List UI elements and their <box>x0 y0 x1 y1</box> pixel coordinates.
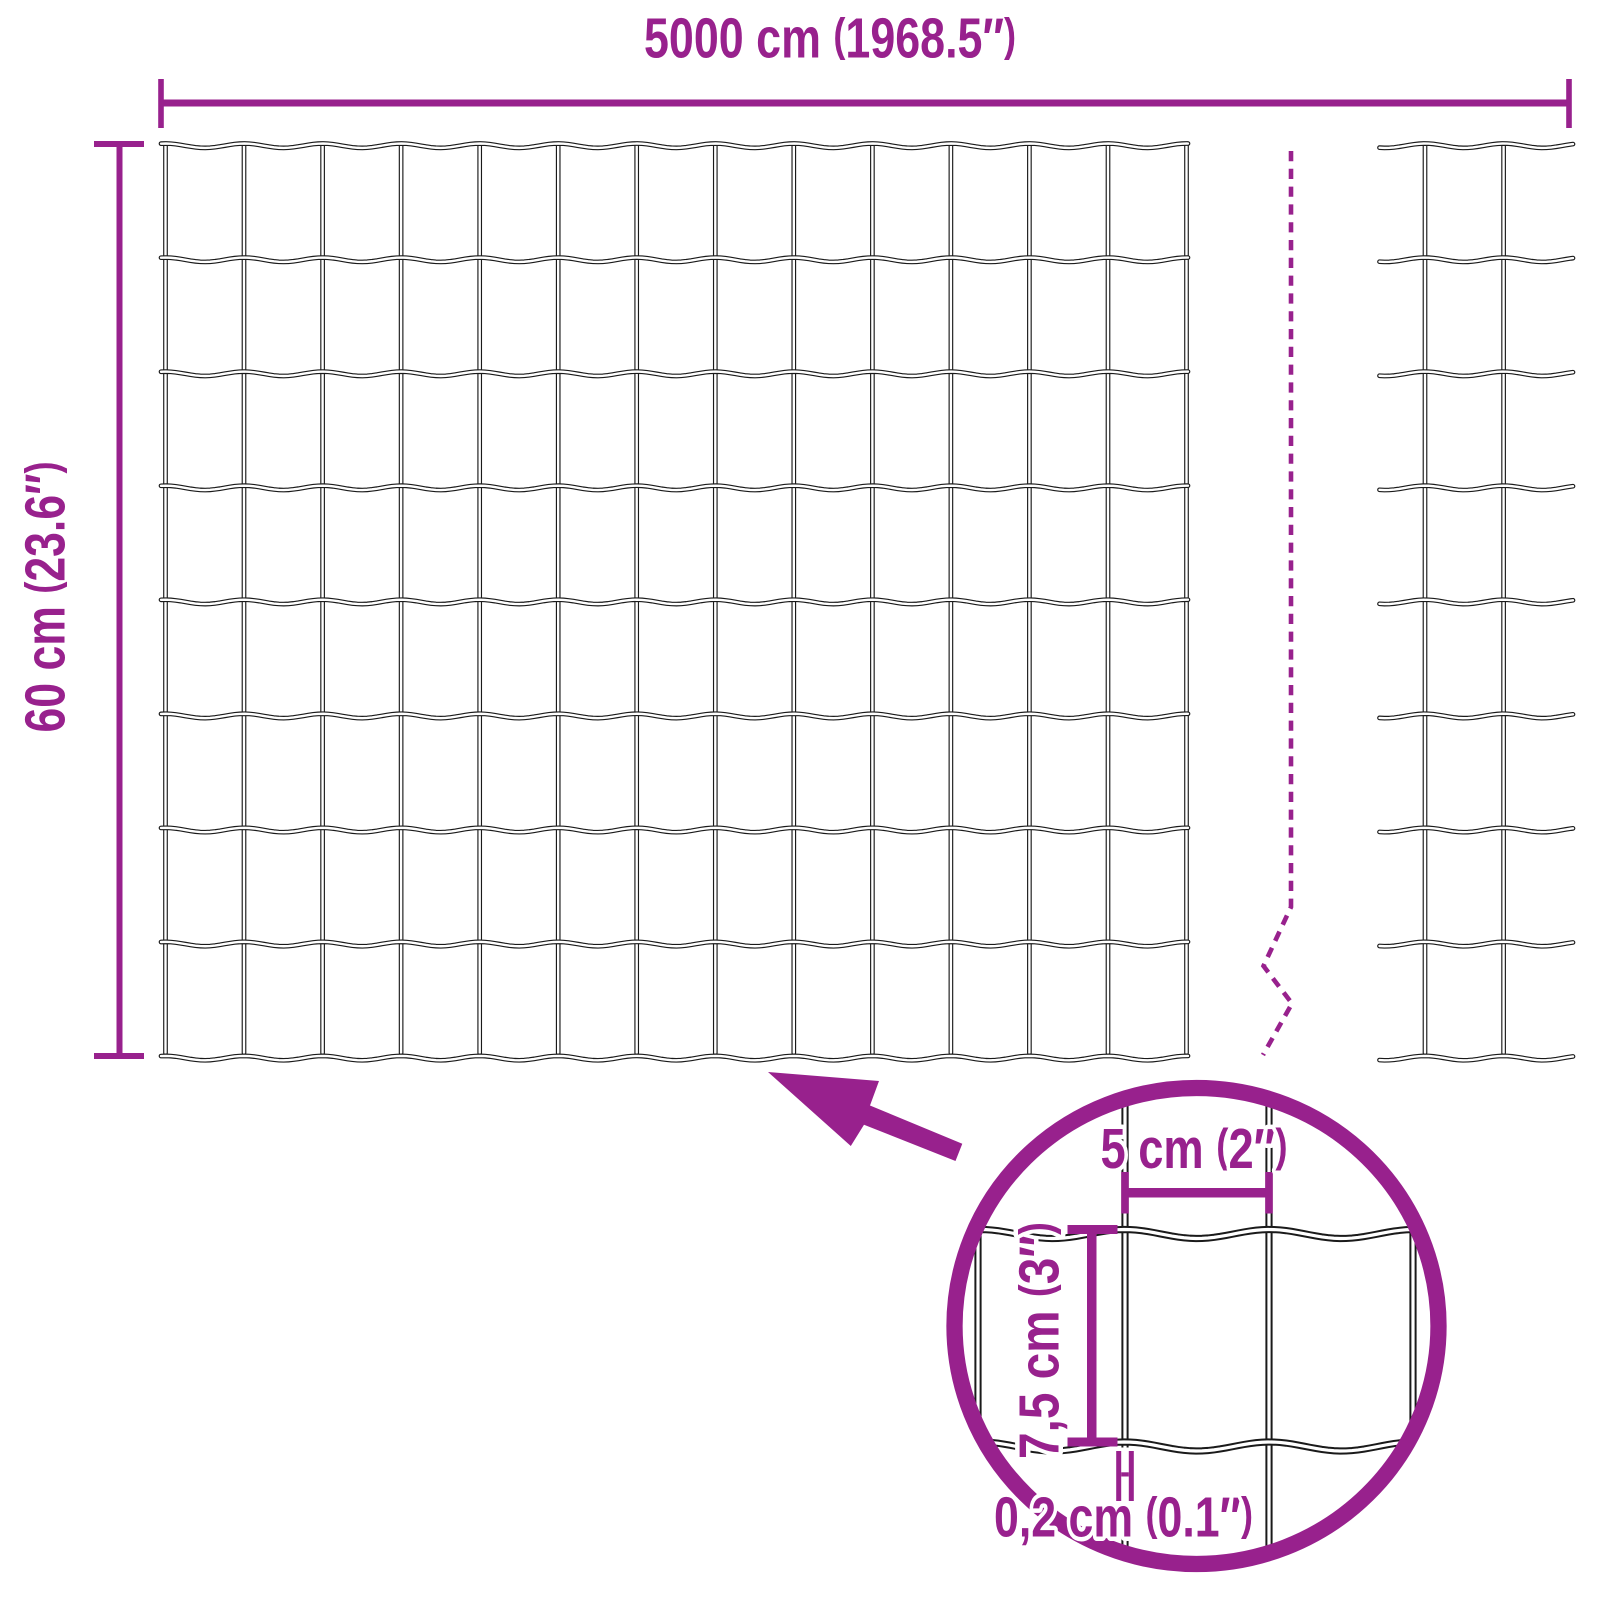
svg-text:60 cm (23.6″): 60 cm (23.6″) <box>14 462 78 733</box>
svg-text:5000 cm (1968.5″): 5000 cm (1968.5″) <box>644 7 1016 71</box>
svg-text:5 cm (2″): 5 cm (2″) <box>1101 1117 1288 1181</box>
svg-text:0,2 cm (0.1″): 0,2 cm (0.1″) <box>994 1486 1253 1550</box>
svg-text:7,5 cm (3″): 7,5 cm (3″) <box>1008 1222 1072 1459</box>
